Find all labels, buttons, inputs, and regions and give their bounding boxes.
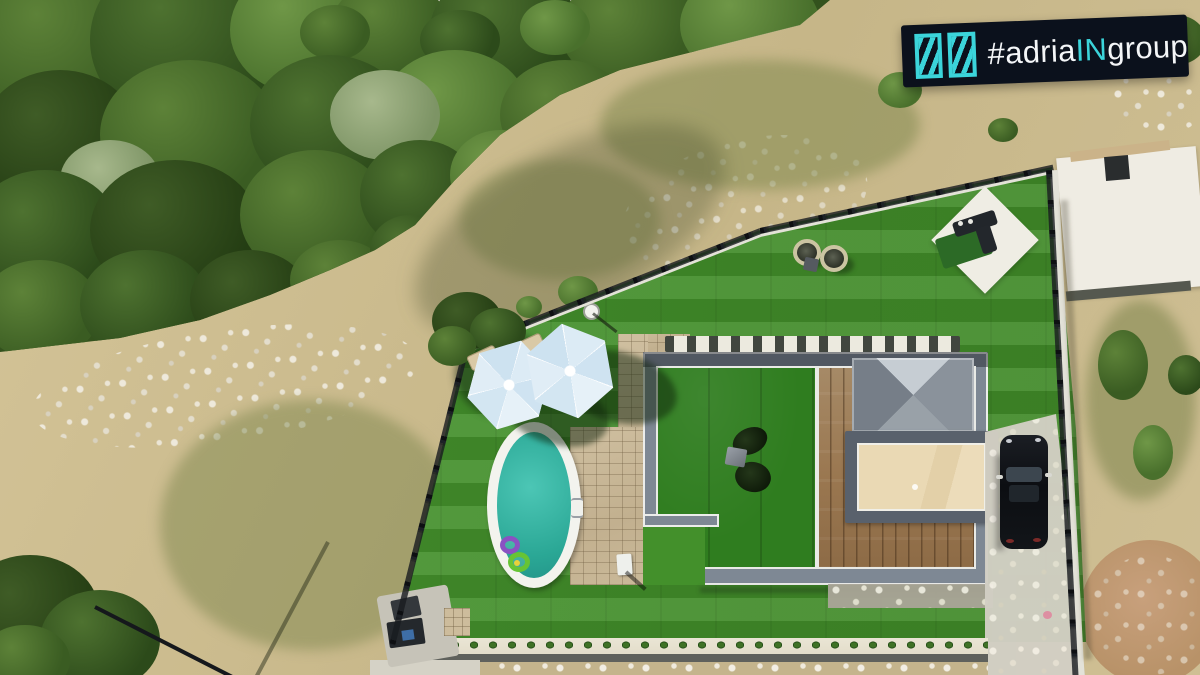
tree-canopy bbox=[300, 5, 370, 60]
lawn-notch bbox=[643, 526, 705, 585]
bush bbox=[988, 118, 1018, 142]
watermark-prefix: #adria bbox=[987, 32, 1076, 70]
paver-pad bbox=[444, 608, 470, 636]
skylight bbox=[852, 358, 974, 432]
swimming-pool bbox=[497, 432, 571, 578]
side-table bbox=[803, 257, 819, 273]
car-windshield bbox=[1006, 467, 1042, 482]
parapet-cap-blocks bbox=[665, 336, 960, 352]
slab-opening bbox=[1104, 155, 1130, 181]
bush bbox=[1098, 330, 1148, 400]
pool-toy bbox=[514, 560, 520, 566]
paint-mark bbox=[1043, 611, 1052, 619]
parapet-jog bbox=[643, 514, 719, 527]
parked-car bbox=[1000, 435, 1048, 549]
pool-ladder bbox=[571, 498, 583, 518]
car-taillight bbox=[1033, 538, 1041, 542]
blue-canister bbox=[401, 629, 414, 641]
annex-roof-dot bbox=[912, 484, 918, 490]
aerial-photo: #adriaINgroup bbox=[0, 0, 1200, 675]
watermark-accent: IN bbox=[1075, 31, 1108, 67]
car-mirror bbox=[1045, 473, 1052, 477]
annex-roof bbox=[857, 443, 986, 511]
cushion bbox=[968, 219, 973, 224]
car-sunroof bbox=[1009, 485, 1039, 502]
watermark-suffix: group bbox=[1106, 28, 1188, 66]
car-headlight bbox=[1006, 439, 1012, 443]
round-chair bbox=[820, 245, 848, 272]
bush bbox=[1168, 355, 1200, 395]
stone-scatter bbox=[1090, 555, 1200, 675]
logo-square-icon bbox=[948, 31, 977, 77]
pebble-band bbox=[828, 584, 993, 608]
watermark-text: #adriaINgroup bbox=[987, 30, 1188, 69]
car-headlight bbox=[1035, 438, 1041, 442]
cube-side-table bbox=[725, 446, 748, 467]
tree-canopy bbox=[520, 0, 590, 55]
bush bbox=[1133, 425, 1173, 480]
car-mirror bbox=[996, 475, 1003, 479]
logo-square-icon bbox=[914, 32, 943, 78]
car-taillight bbox=[1006, 539, 1014, 543]
access-road bbox=[370, 660, 480, 675]
watermark: #adriaINgroup bbox=[901, 15, 1189, 88]
cushion bbox=[958, 221, 963, 226]
